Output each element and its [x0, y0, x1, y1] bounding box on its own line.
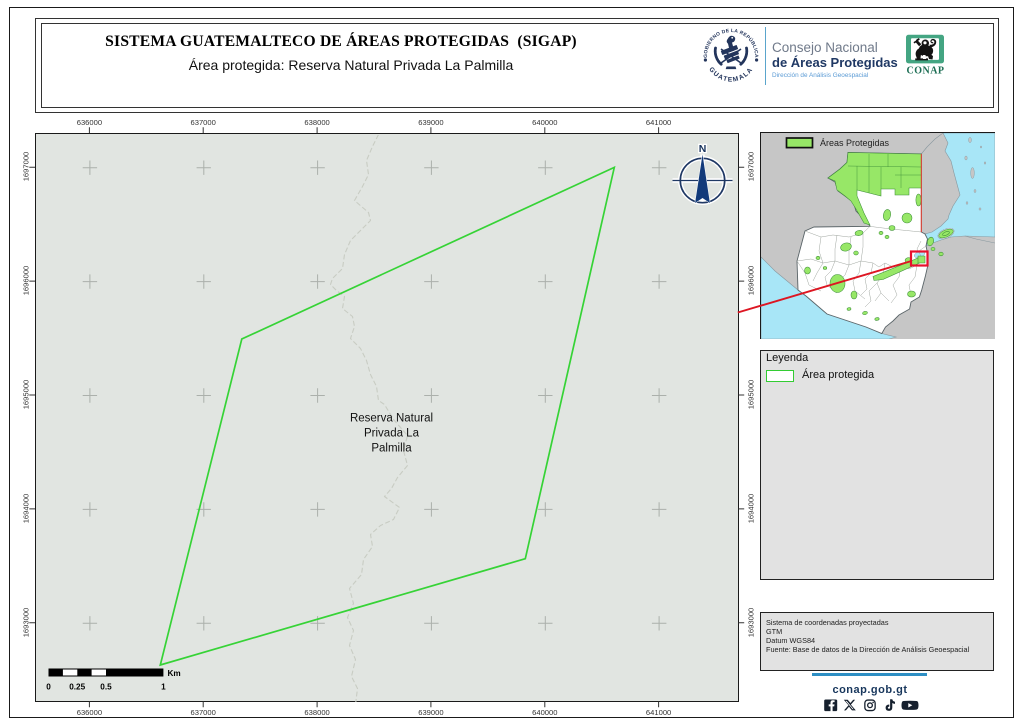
svg-text:Áreas Protegidas: Áreas Protegidas [820, 137, 890, 147]
svg-text:CONAP: CONAP [906, 65, 944, 76]
